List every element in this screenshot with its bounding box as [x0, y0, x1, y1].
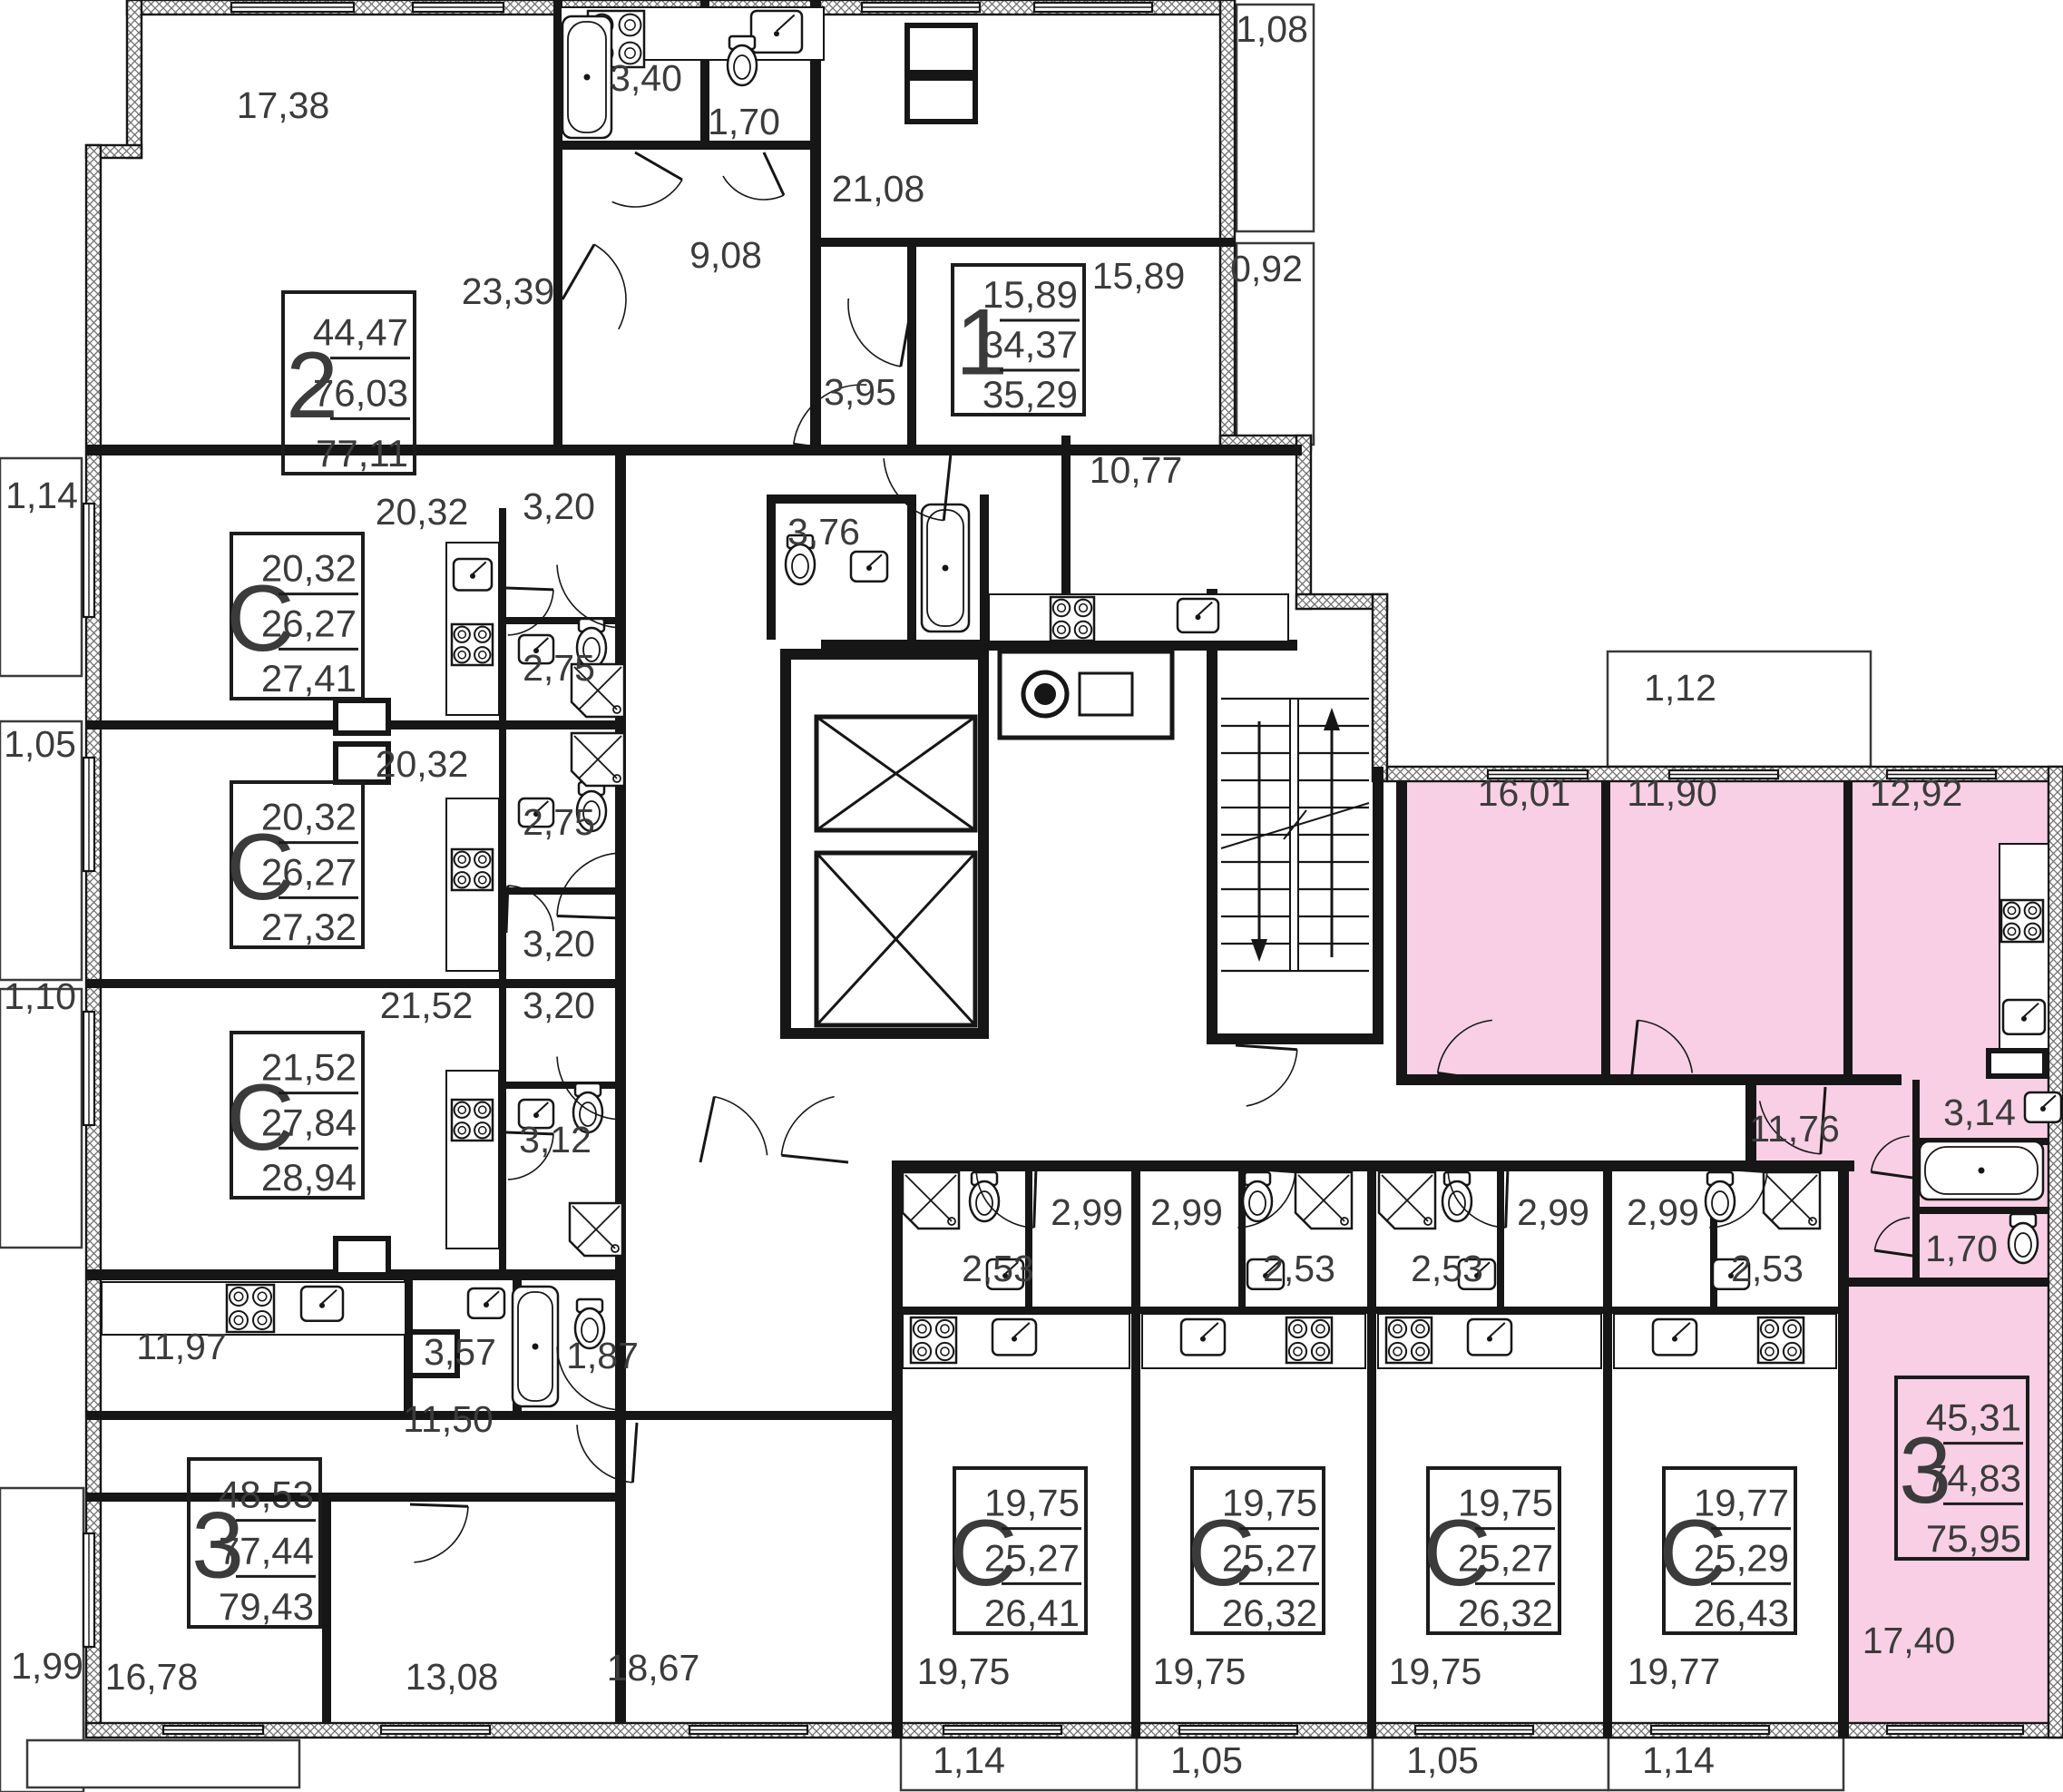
wall [86, 1493, 626, 1502]
room-area-label: 21,08 [832, 168, 925, 210]
floor-plan-drawing: 17,383,401,709,0821,0823,3915,893,9510,7… [0, 0, 2063, 1792]
room-area-label: 1,05 [1406, 1739, 1479, 1781]
apartment-info-box: C19,7525,2726,32 [1423, 1468, 1559, 1634]
wall [1497, 1166, 1504, 1311]
wall [499, 1082, 622, 1089]
apartment-living-area: 20,32 [261, 796, 357, 838]
door-arc [781, 1097, 834, 1156]
toilet-icon [728, 36, 757, 85]
door-arc [612, 180, 682, 207]
wall [1238, 1166, 1246, 1311]
wall [907, 495, 916, 640]
door-arc [1247, 1050, 1297, 1106]
apartment-living-area: 48,53 [219, 1474, 314, 1516]
apartment-area-area: 25,27 [984, 1536, 1080, 1579]
apartment-info-box: C21,5227,8428,94 [226, 1033, 363, 1199]
apartment-area-area: 27,84 [261, 1101, 357, 1143]
apartment-area-area: 34,37 [983, 323, 1078, 366]
room-area-label: 3,12 [519, 1119, 592, 1160]
exterior-wall [2048, 767, 2063, 1738]
apartment-area-area: 76,03 [313, 371, 408, 414]
bathtub-icon [513, 1287, 558, 1406]
room-area-label: 1,05 [1170, 1739, 1243, 1781]
wall [810, 0, 821, 450]
room-area-label: 11,90 [1627, 772, 1717, 814]
room-area-label: 2,75 [523, 647, 595, 689]
room-area-label: 1,87 [566, 1335, 639, 1376]
room-area-label: 10,77 [1090, 449, 1183, 491]
room-area-label: 19,75 [1153, 1650, 1247, 1692]
door-leaf [506, 588, 553, 590]
door-leaf [632, 1423, 637, 1483]
exterior-wall [127, 0, 142, 158]
door-swing [1236, 1045, 1297, 1106]
room-area-label: 3,20 [523, 923, 595, 965]
apartment-total-area: 27,41 [261, 657, 357, 700]
apartment-living-area: 19,75 [1458, 1482, 1553, 1524]
sink-icon [301, 1287, 343, 1321]
kitchen-counter [989, 594, 1288, 641]
room-area-label: 17,40 [1863, 1620, 1956, 1661]
door-leaf [562, 244, 594, 299]
door-leaf [557, 916, 622, 918]
wall [1025, 1166, 1032, 1311]
room-area-label: 1,70 [708, 101, 780, 142]
highlighted-area [1402, 774, 2056, 1080]
sink-icon [1468, 1319, 1511, 1355]
door-leaf [1236, 1045, 1297, 1050]
room-area-label: 20,32 [376, 743, 469, 785]
stair-stringer [1290, 699, 1298, 971]
wall [821, 238, 1234, 247]
apartment-living-area: 19,77 [1694, 1482, 1789, 1524]
room-area-label: 0,92 [1230, 248, 1303, 289]
door-swing [562, 244, 626, 328]
stove-icon [1758, 1317, 1804, 1363]
apartment-total-area: 35,29 [983, 373, 1078, 416]
room-area-label: 3,14 [1943, 1092, 2016, 1133]
door-leaf [1506, 1168, 1508, 1228]
sink-icon [992, 1319, 1036, 1355]
room-area-label: 2,99 [1051, 1191, 1123, 1233]
apartment-total-area: 26,32 [1222, 1591, 1317, 1634]
apartment-area-area: 25,27 [1458, 1536, 1553, 1579]
room-area-label: 19,77 [1628, 1650, 1721, 1692]
room-area-label: 20,32 [376, 491, 469, 533]
wall [780, 649, 791, 1039]
wall [553, 145, 562, 445]
exterior-wall [1220, 0, 1235, 450]
room-area-label: 1,70 [1925, 1228, 1998, 1269]
wall [907, 238, 916, 445]
appliance-box [907, 78, 975, 122]
door-swing [506, 588, 553, 635]
door-leaf [506, 886, 508, 933]
door-arc [723, 176, 784, 200]
room-area-label: 2,99 [1627, 1191, 1699, 1233]
balcony [0, 989, 82, 1248]
room-area-label: 1,12 [1644, 667, 1716, 709]
room-area-label: 1,14 [933, 1739, 1005, 1781]
room-area-label: 9,08 [689, 234, 762, 276]
apartment-info-box: C19,7725,2926,43 [1658, 1468, 1795, 1634]
room-area-label: 1,05 [4, 723, 76, 765]
wall [1131, 1160, 1140, 1738]
exterior-wall [1373, 594, 1387, 781]
wall [892, 1160, 903, 1738]
trash-chute-cap [1034, 683, 1056, 705]
room-area-label: 3,76 [787, 511, 860, 553]
shower-icon [572, 733, 624, 786]
apartment-total-area: 75,95 [1926, 1517, 2021, 1560]
room-area-label: 11,76 [1749, 1108, 1840, 1150]
toilet-icon [1706, 1172, 1735, 1221]
room-area-label: 3,20 [523, 984, 595, 1026]
stove-icon [452, 624, 493, 665]
room-area-label: 1,14 [1642, 1739, 1715, 1781]
wall [1396, 781, 1407, 1081]
wall [1838, 1160, 1849, 1738]
wall [780, 649, 989, 660]
apartment-info-box: C20,3226,2727,32 [226, 782, 363, 948]
door-swing [557, 853, 622, 918]
room-area-label: 11,50 [403, 1398, 494, 1440]
sink-icon [1181, 1319, 1225, 1355]
door-arc [848, 299, 901, 367]
wall [1603, 1160, 1612, 1738]
stove-icon [1051, 597, 1094, 641]
apartment-info-box: C19,7525,2726,41 [949, 1468, 1086, 1634]
door-leaf [410, 1504, 468, 1506]
room-area-label: 1,99 [11, 1645, 83, 1687]
apartment-living-area: 19,75 [1222, 1482, 1317, 1524]
stove-icon [452, 849, 493, 890]
room-area-label: 23,39 [462, 270, 555, 312]
shower-icon [570, 1203, 622, 1256]
room-area-label: 2,53 [1731, 1248, 1804, 1289]
apartment-area-area: 26,27 [261, 850, 357, 893]
toilet-icon [1243, 1172, 1272, 1221]
apartment-area-area: 25,29 [1694, 1536, 1789, 1579]
door-swing [700, 1097, 768, 1162]
wall [499, 728, 506, 979]
room-area-label: 19,75 [917, 1650, 1011, 1692]
wall [1207, 589, 1217, 1044]
shower-icon [1764, 1172, 1820, 1229]
wall [499, 508, 506, 720]
apartment-info-box: 115,8934,3735,29 [953, 265, 1084, 416]
door-swing [781, 1097, 848, 1162]
apartment-total-area: 77,11 [316, 432, 408, 475]
room-area-label: 16,01 [1478, 772, 1571, 814]
door-arc [414, 1506, 467, 1562]
apartment-living-area: 44,47 [313, 311, 408, 354]
bathtub-icon [1920, 1141, 2043, 1200]
door-leaf [764, 152, 784, 195]
stove-icon [227, 1285, 274, 1332]
door-swing [612, 152, 682, 207]
appliance-box [1989, 1051, 2045, 1076]
apartment-total-area: 79,43 [219, 1585, 314, 1628]
door-swing [848, 299, 912, 367]
apartment-info-box: C20,3226,2727,41 [226, 534, 363, 700]
room-area-label: 13,08 [406, 1656, 499, 1698]
sink-icon [851, 552, 887, 582]
room-area-label: 12,92 [1870, 772, 1963, 814]
room-area-label: 17,38 [237, 84, 330, 126]
room-area-label: 1,10 [4, 975, 76, 1017]
sink-icon [2025, 1092, 2061, 1122]
appliance-box [336, 1239, 388, 1275]
toilet-icon [1442, 1172, 1471, 1221]
toilet-icon [2009, 1214, 2038, 1263]
room-area-label: 2,75 [523, 801, 595, 843]
apartment-total-area: 28,94 [261, 1156, 357, 1199]
apartment-living-area: 45,31 [1926, 1396, 2021, 1439]
apartment-living-area: 21,52 [261, 1046, 357, 1089]
room-area-label: 2,53 [962, 1248, 1034, 1289]
room-area-label: 11,97 [136, 1326, 227, 1367]
sink-icon [468, 1288, 504, 1318]
shower-icon [903, 1172, 959, 1229]
shower-icon [1379, 1172, 1435, 1229]
room-area-label: 3,20 [523, 485, 595, 527]
room-area-label: 21,52 [380, 984, 474, 1026]
room-area-label: 3,95 [824, 371, 896, 413]
room-area-label: 2,53 [1411, 1248, 1483, 1289]
stove-icon [911, 1317, 956, 1363]
bathtub-icon [922, 504, 969, 632]
room-area-label: 16,78 [105, 1656, 199, 1698]
apartment-living-area: 19,75 [984, 1482, 1080, 1524]
shower-icon [1295, 1172, 1352, 1229]
wall [767, 499, 776, 640]
wall [1207, 1033, 1383, 1044]
room-area-label: 2,53 [1263, 1248, 1335, 1289]
apartment-total-area: 27,32 [261, 906, 357, 948]
bathtub-icon [562, 16, 611, 138]
door-leaf [1034, 1168, 1036, 1228]
door-arc [557, 853, 618, 916]
door-arc [508, 590, 553, 635]
sink-icon [2003, 1000, 2045, 1034]
room-area-label: 19,75 [1389, 1650, 1482, 1692]
sink-icon [454, 559, 492, 590]
appliance-box [336, 700, 388, 733]
balcony [27, 1740, 299, 1787]
sink-icon [751, 11, 802, 53]
wall [767, 495, 912, 504]
door-arc [594, 244, 626, 328]
apartment-area-area: 25,27 [1222, 1536, 1317, 1579]
wall [1367, 1160, 1376, 1738]
apartment-living-area: 15,89 [983, 273, 1078, 316]
room-area-label: 1,08 [1236, 8, 1308, 50]
stove-icon [452, 1100, 493, 1141]
apartment-area-area: 26,27 [261, 602, 357, 644]
stove-icon [1386, 1317, 1432, 1363]
stair-up-arrowhead [1324, 708, 1340, 730]
stair-down-arrowhead [1251, 939, 1267, 962]
stairs-and-elevators [816, 651, 1369, 1025]
stove-icon [1286, 1317, 1332, 1363]
apartment-total-area: 26,41 [984, 1591, 1080, 1634]
wall [499, 887, 622, 895]
door-arc [714, 1097, 767, 1156]
door-swing [723, 152, 784, 200]
apartment-total-area: 26,43 [1694, 1591, 1789, 1634]
wall [553, 141, 821, 150]
door-swing [577, 1423, 637, 1483]
apartment-info-box: C19,7525,2726,32 [1187, 1468, 1324, 1634]
wall [1396, 1074, 1902, 1085]
exterior-wall [1296, 436, 1311, 609]
apartment-total-area: 26,32 [1458, 1591, 1553, 1634]
wall [322, 1493, 331, 1723]
apartment-info-box: 348,5377,4479,43 [189, 1459, 320, 1628]
wall [1843, 781, 1853, 1081]
floor-plan-canvas: 17,383,401,709,0821,0823,3915,893,9510,7… [0, 0, 2063, 1792]
kitchen-counter [446, 1071, 499, 1249]
apartment-area-area: 74,83 [1926, 1456, 2021, 1499]
door-leaf [635, 152, 682, 180]
sink-icon [1653, 1319, 1696, 1355]
apartment-area-area: 77,44 [219, 1529, 314, 1572]
wall [499, 984, 506, 1269]
room-area-label: 18,67 [607, 1647, 700, 1689]
appliance-box [907, 25, 975, 73]
room-area-label: 2,99 [1150, 1191, 1223, 1233]
wall [1376, 1307, 1603, 1314]
door-leaf [781, 1155, 848, 1162]
stove-icon [2001, 900, 2043, 942]
room-area-label: 3,40 [610, 57, 682, 99]
room-area-label: 15,89 [1092, 255, 1186, 297]
room-area-label: 2,99 [1517, 1191, 1589, 1233]
wall [980, 495, 989, 640]
wall [1140, 1307, 1367, 1314]
wall [1601, 781, 1610, 1081]
wall [978, 649, 989, 1039]
wall [892, 1307, 1131, 1314]
sink-icon [1178, 599, 1218, 632]
room-area-label: 1,14 [5, 475, 78, 516]
wall [1612, 1307, 1839, 1314]
wall [1373, 767, 1383, 1044]
apartment-living-area: 20,32 [261, 547, 357, 590]
wall [1843, 1278, 2048, 1287]
wall [780, 1028, 989, 1039]
room-area-label: 3,57 [424, 1331, 496, 1373]
door-leaf [700, 1097, 714, 1162]
door-swing [410, 1504, 468, 1562]
